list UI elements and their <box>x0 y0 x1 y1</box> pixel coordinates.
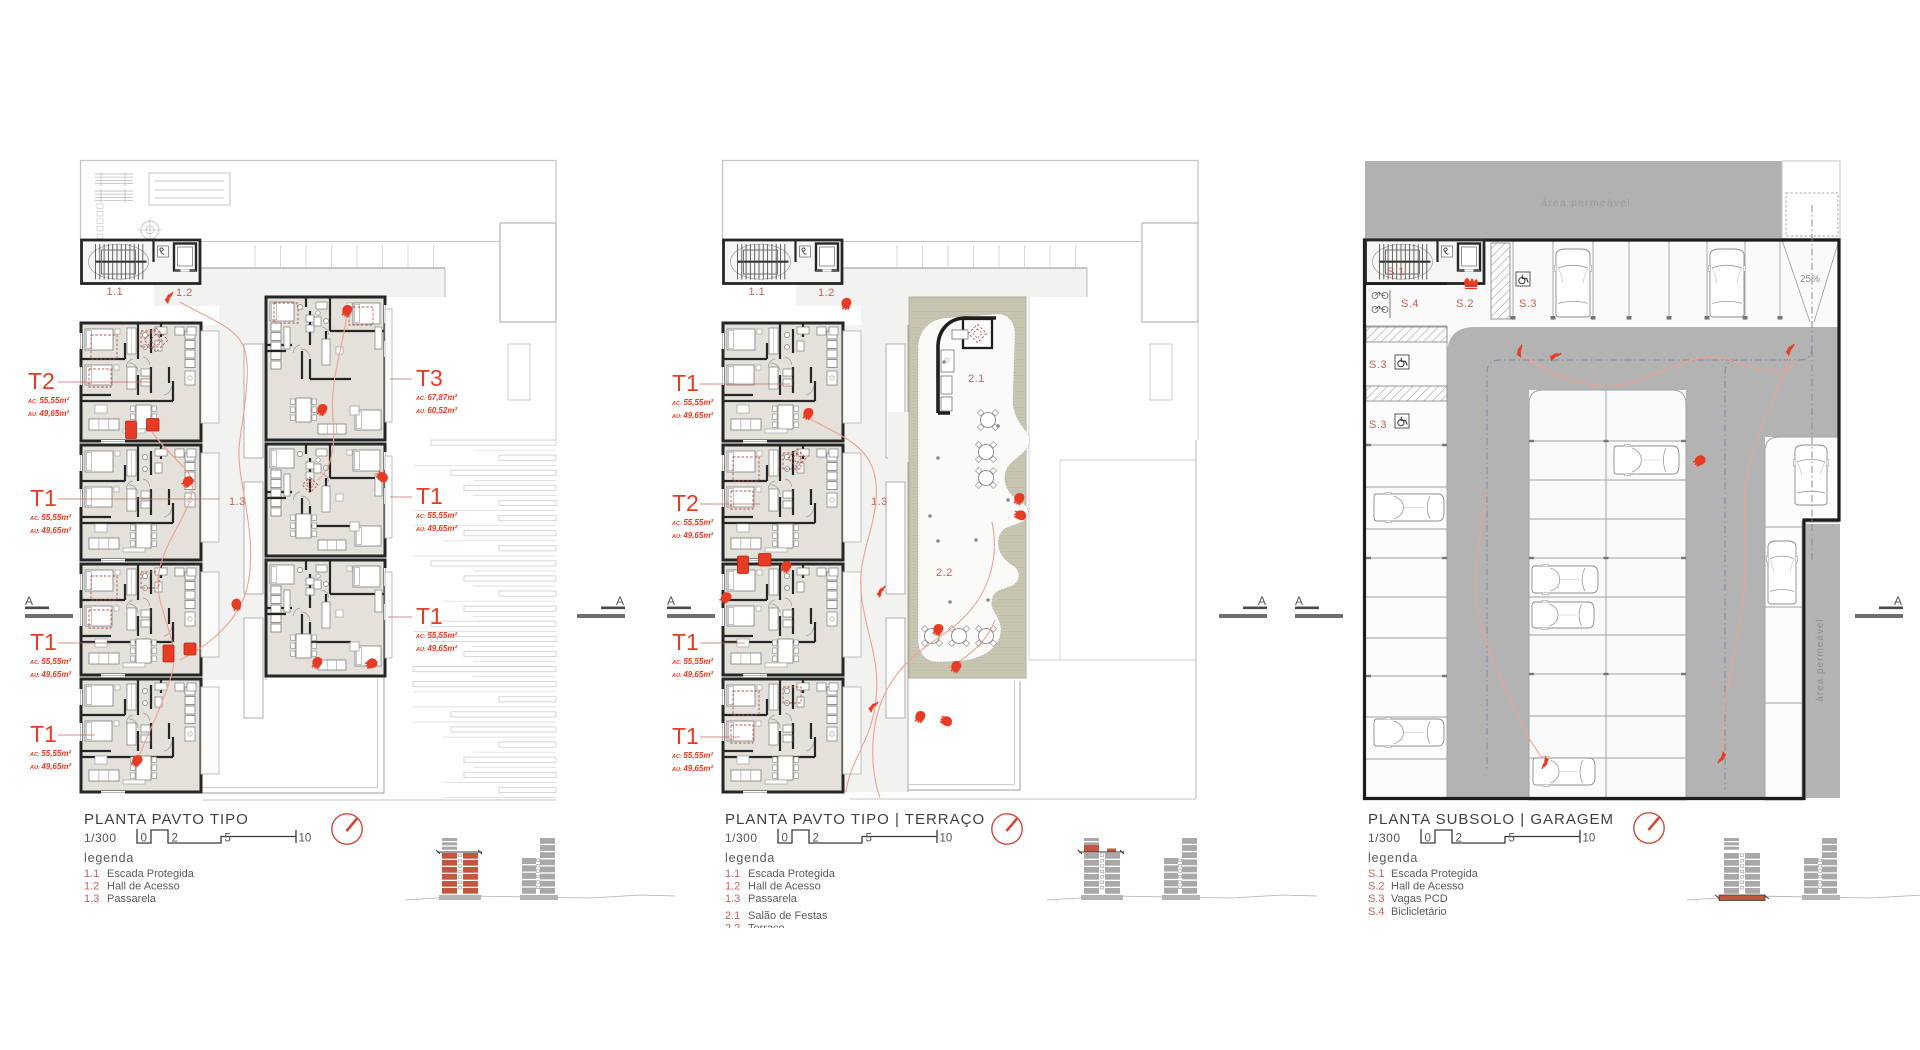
svg-text:T1: T1 <box>672 370 699 396</box>
svg-text:1.1: 1.1 <box>725 868 740 880</box>
svg-text:2.1: 2.1 <box>725 910 740 922</box>
svg-text:1.1: 1.1 <box>107 286 124 298</box>
svg-text:S.4: S.4 <box>1368 906 1385 918</box>
svg-text:A: A <box>25 594 33 608</box>
svg-text:T1: T1 <box>672 723 699 749</box>
svg-text:0: 0 <box>1425 833 1431 845</box>
svg-text:0: 0 <box>141 833 147 845</box>
svg-text:Escada Protegida: Escada Protegida <box>1391 868 1479 880</box>
svg-text:T1: T1 <box>672 629 699 655</box>
svg-text:A: A <box>1295 594 1303 608</box>
svg-text:5: 5 <box>225 833 231 845</box>
svg-text:1.3: 1.3 <box>84 893 99 905</box>
svg-text:S.3: S.3 <box>1519 298 1537 310</box>
svg-text:área permeável: área permeável <box>1541 197 1631 209</box>
svg-text:5: 5 <box>1509 833 1515 845</box>
svg-text:1/300: 1/300 <box>725 831 758 845</box>
svg-text:S.4: S.4 <box>1401 298 1419 310</box>
svg-text:1.3: 1.3 <box>871 496 888 508</box>
svg-text:1/300: 1/300 <box>1368 831 1401 845</box>
svg-text:T2: T2 <box>28 368 55 394</box>
svg-text:PLANTA SUBSOLO | GARAGEM: PLANTA SUBSOLO | GARAGEM <box>1368 811 1614 828</box>
svg-text:1.2: 1.2 <box>84 881 99 893</box>
svg-text:1.2: 1.2 <box>818 287 835 299</box>
svg-text:1/300: 1/300 <box>84 831 117 845</box>
svg-text:1.2: 1.2 <box>176 287 193 299</box>
svg-text:legenda: legenda <box>725 851 775 865</box>
svg-text:2: 2 <box>172 833 178 845</box>
svg-text:Escada Protegida: Escada Protegida <box>107 868 195 880</box>
svg-text:S.2: S.2 <box>1368 881 1385 893</box>
svg-text:A: A <box>1894 594 1902 608</box>
svg-text:1.3: 1.3 <box>725 893 740 905</box>
svg-text:Hall de Acesso: Hall de Acesso <box>107 881 180 893</box>
svg-text:Passarela: Passarela <box>748 893 798 905</box>
svg-text:T1: T1 <box>30 629 57 655</box>
svg-text:Hall de Acesso: Hall de Acesso <box>1391 881 1464 893</box>
svg-text:A: A <box>667 594 675 608</box>
svg-text:legenda: legenda <box>84 851 134 865</box>
svg-text:Hall de Acesso: Hall de Acesso <box>748 881 821 893</box>
svg-text:10: 10 <box>299 833 312 845</box>
svg-text:Biclicletário: Biclicletário <box>1391 906 1447 918</box>
svg-text:Salão de Festas: Salão de Festas <box>748 910 828 922</box>
svg-text:1.2: 1.2 <box>725 881 740 893</box>
svg-text:PLANTA PAVTO TIPO: PLANTA PAVTO TIPO <box>84 811 249 828</box>
svg-text:S.3: S.3 <box>1368 893 1385 905</box>
svg-text:10: 10 <box>1583 833 1596 845</box>
svg-text:legenda: legenda <box>1368 851 1418 865</box>
svg-text:Escada Protegida: Escada Protegida <box>748 868 836 880</box>
svg-text:2.2: 2.2 <box>936 567 953 579</box>
svg-text:T2: T2 <box>672 490 699 516</box>
svg-text:S.2: S.2 <box>1456 298 1474 310</box>
svg-text:2: 2 <box>1456 833 1462 845</box>
svg-text:1.3: 1.3 <box>229 496 246 508</box>
svg-text:T1: T1 <box>30 485 57 511</box>
svg-text:1.1: 1.1 <box>749 286 766 298</box>
svg-text:1.1: 1.1 <box>84 868 99 880</box>
svg-text:Vagas PCD: Vagas PCD <box>1391 893 1448 905</box>
svg-text:2: 2 <box>813 833 819 845</box>
svg-text:S.1: S.1 <box>1368 868 1385 880</box>
svg-text:A: A <box>616 594 624 608</box>
svg-text:25%: 25% <box>1800 274 1820 285</box>
svg-text:T1: T1 <box>416 603 443 629</box>
svg-text:S.3: S.3 <box>1369 419 1387 431</box>
svg-text:área permeável: área permeável <box>1815 618 1826 701</box>
svg-text:0: 0 <box>782 833 788 845</box>
svg-text:T1: T1 <box>416 483 443 509</box>
svg-text:S.3: S.3 <box>1369 359 1387 371</box>
svg-text:2.1: 2.1 <box>968 373 985 385</box>
svg-text:10: 10 <box>940 833 953 845</box>
svg-text:T1: T1 <box>30 721 57 747</box>
svg-text:5: 5 <box>866 833 872 845</box>
svg-text:PLANTA PAVTO TIPO | TERRAÇO: PLANTA PAVTO TIPO | TERRAÇO <box>725 811 985 828</box>
svg-text:A: A <box>1258 594 1266 608</box>
svg-text:S.1: S.1 <box>1387 266 1405 278</box>
svg-text:T3: T3 <box>416 365 443 391</box>
svg-text:Passarela: Passarela <box>107 893 157 905</box>
